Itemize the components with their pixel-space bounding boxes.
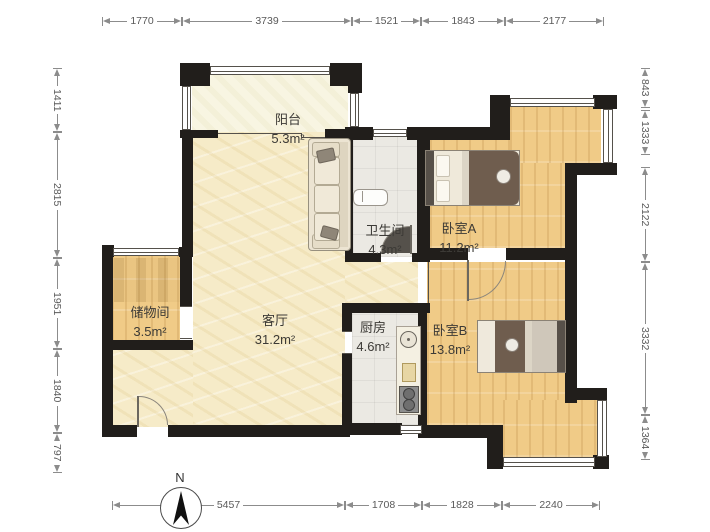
window [350, 93, 359, 127]
bed-sheet-fold [462, 151, 469, 205]
window [400, 425, 422, 434]
wall-segment [180, 130, 218, 138]
dim-left-3: 1951 [50, 258, 64, 349]
wall-segment [182, 130, 193, 257]
sofa [308, 138, 351, 251]
bed-b [477, 320, 566, 373]
dim-top-1: 1770 [102, 14, 182, 28]
sofa-cushion [314, 185, 340, 213]
bed-pillow [436, 180, 450, 202]
dim-top-4: 1843 [421, 14, 505, 28]
window [210, 66, 330, 75]
opening-jamb [180, 306, 192, 307]
room-label-kitchen: 厨房4.6m² [356, 318, 389, 356]
window [510, 98, 595, 107]
window [503, 457, 595, 467]
compass-circle-icon [160, 487, 202, 529]
window [603, 109, 613, 163]
bed-sheet-fold [525, 321, 532, 372]
wall-segment [342, 303, 430, 313]
bed-decor-pillow [505, 338, 519, 352]
dim-bottom-1: 5457 [112, 498, 345, 512]
storage-shelving [114, 258, 180, 302]
dim-right-3: 2122 [638, 167, 652, 262]
dim-bottom-4: 2240 [502, 498, 600, 512]
wall-segment [102, 340, 193, 350]
dim-left-4: 1840 [50, 349, 64, 433]
bed-headboard [557, 321, 565, 372]
dim-left-1: 1411 [50, 68, 64, 132]
dim-top-5: 2177 [505, 14, 604, 28]
room-label-living: 客厅31.2m² [255, 311, 295, 349]
dim-left-2: 2815 [50, 132, 64, 258]
opening-jamb [180, 338, 192, 339]
dim-right-4: 3332 [638, 262, 652, 415]
wall-segment [490, 95, 510, 139]
dim-right-2: 1333 [638, 110, 652, 167]
dim-top-3: 1521 [352, 14, 421, 28]
bed-decor-pillow [496, 169, 511, 184]
stove-icon [399, 386, 419, 413]
opening-jamb [342, 353, 352, 354]
bed-pillow [436, 155, 450, 177]
window [373, 129, 407, 137]
kitchen-counter [396, 326, 421, 415]
wall-segment [342, 354, 352, 427]
bed-mattress [532, 321, 557, 372]
room-label-storage: 储物间3.5m² [130, 303, 169, 341]
bed-a [425, 150, 520, 206]
threshold-line [428, 262, 429, 303]
floor-hallway [345, 262, 418, 303]
room-label-bedroom-b: 卧室B13.8m² [430, 321, 470, 359]
wall-segment [348, 63, 362, 93]
bed-duvet [469, 151, 519, 205]
dim-bottom-3: 1828 [422, 498, 502, 512]
window [113, 248, 179, 256]
dim-left-5: 797 [50, 433, 64, 475]
wall-segment [593, 95, 617, 109]
wall-segment [180, 255, 192, 307]
wall-segment [342, 303, 352, 331]
north-compass: N [158, 470, 202, 529]
floor-balcony [192, 72, 348, 134]
wall-segment [506, 248, 577, 260]
dim-bottom-2: 1708 [345, 498, 422, 512]
wall-segment [168, 425, 350, 437]
window [182, 86, 191, 130]
room-label-bathroom: 卫生间4.3m² [365, 221, 404, 259]
opening-jamb [342, 331, 352, 332]
wall-segment [180, 63, 210, 86]
floor-bedroom-b-southeast [503, 400, 600, 457]
sink-icon [400, 331, 417, 348]
dim-right-5: 1364 [638, 415, 652, 477]
counter-box [402, 363, 416, 382]
window [597, 400, 607, 457]
bathroom-door-leaf [410, 225, 412, 254]
wall-segment [593, 455, 609, 469]
room-label-bedroom-a: 卧室A11.2m² [439, 219, 479, 257]
wall-segment [565, 163, 577, 403]
bed-bench [478, 321, 496, 372]
floor-plan: 阳台5.3m² 卫生间4.3m² 卧室A11.2m² 储物间3.5m² 客厅31… [0, 0, 710, 532]
washbasin-icon [353, 189, 388, 206]
floor-bedroom-a-north [510, 106, 601, 163]
room-label-balcony: 阳台5.3m² [271, 110, 304, 148]
north-arrow-icon [173, 491, 189, 525]
wall-segment [418, 425, 503, 438]
bed-headboard [426, 151, 434, 205]
dim-top-2: 3739 [182, 14, 352, 28]
dim-right-1: 843 [638, 68, 652, 110]
north-label: N [175, 470, 184, 485]
wall-segment [565, 388, 607, 400]
